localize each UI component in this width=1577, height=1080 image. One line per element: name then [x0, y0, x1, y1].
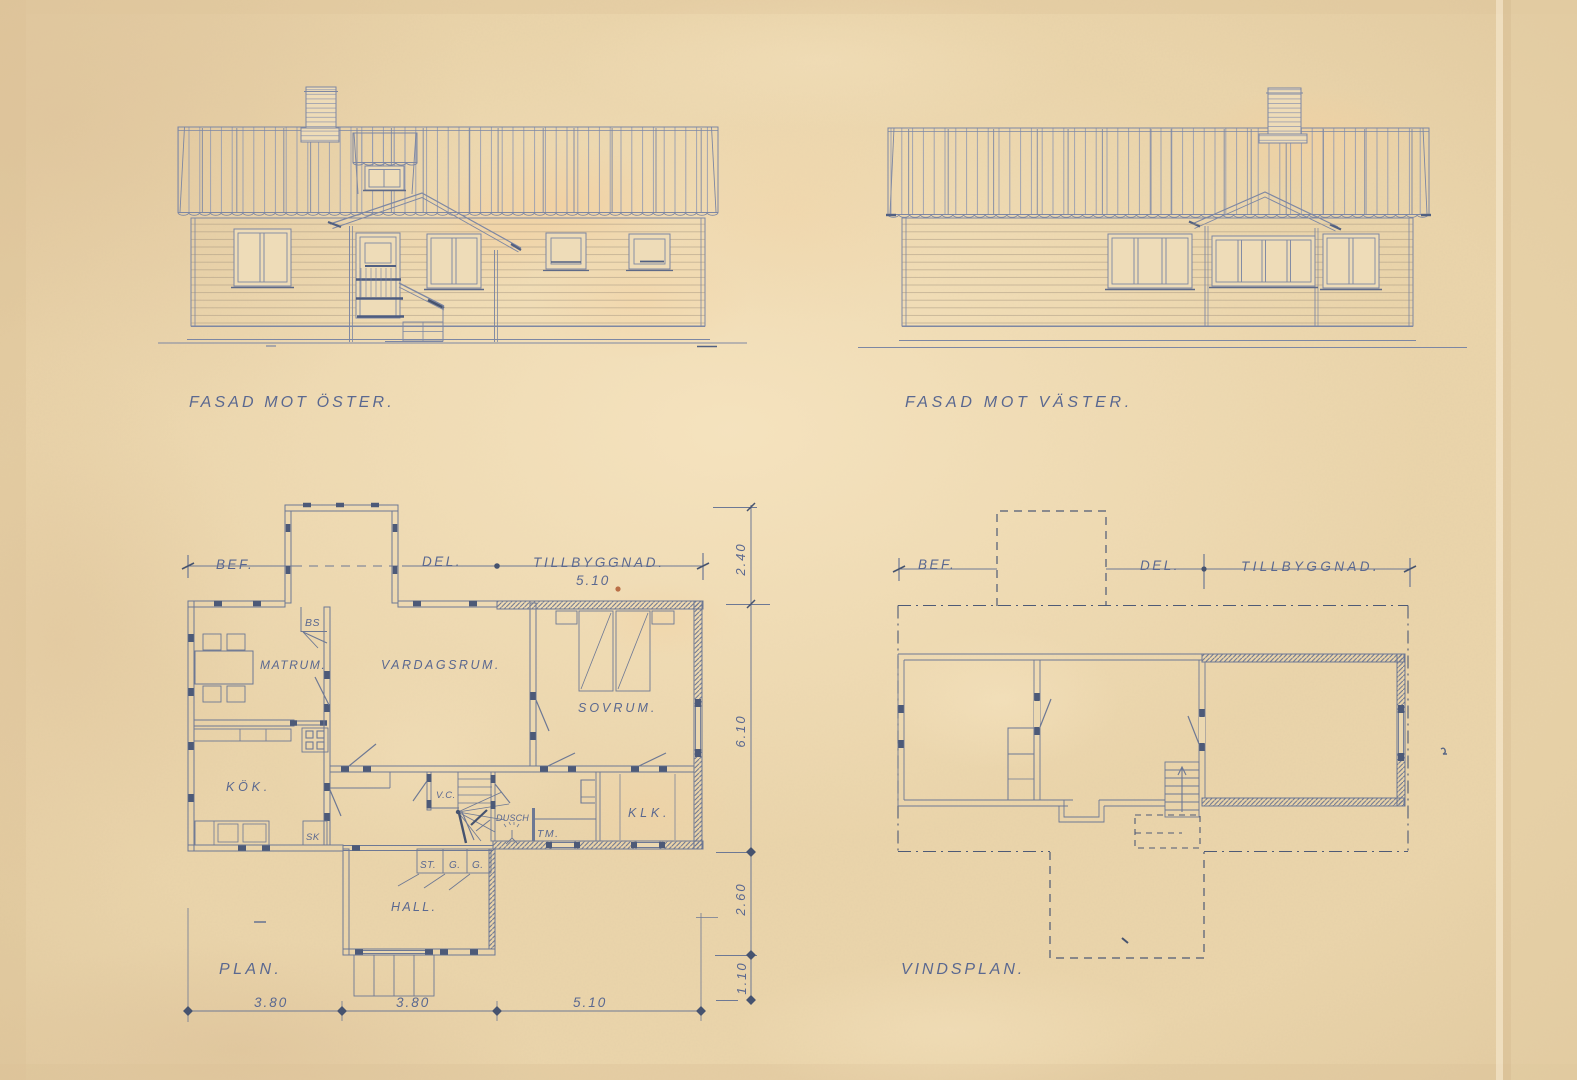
svg-text:1.10: 1.10: [734, 961, 749, 994]
svg-text:KÖK.: KÖK.: [226, 780, 271, 794]
svg-text:V.C.: V.C.: [436, 790, 456, 801]
svg-text:BS: BS: [305, 617, 320, 629]
svg-text:ST.: ST.: [420, 860, 436, 871]
svg-text:3.80: 3.80: [396, 995, 430, 1010]
svg-text:TM.: TM.: [537, 828, 560, 840]
svg-text:FASAD MOT ÖSTER.: FASAD MOT ÖSTER.: [189, 393, 395, 411]
svg-text:KLK.: KLK.: [628, 806, 670, 820]
svg-text:5.10: 5.10: [576, 573, 610, 588]
svg-text:2.60: 2.60: [733, 882, 748, 916]
svg-text:G.: G.: [449, 860, 461, 871]
svg-text:DEL.: DEL.: [1140, 558, 1180, 573]
svg-text:DUSCH: DUSCH: [496, 813, 529, 823]
svg-text:TILLBYGGNAD.: TILLBYGGNAD.: [1241, 559, 1380, 574]
svg-text:5.10: 5.10: [573, 995, 607, 1010]
svg-text:VINDSPLAN.: VINDSPLAN.: [901, 961, 1025, 978]
svg-text:MATRUM.: MATRUM.: [260, 658, 326, 672]
svg-text:TILLBYGGNAD.: TILLBYGGNAD.: [533, 555, 665, 570]
svg-text:SK: SK: [306, 832, 320, 843]
svg-text:G.: G.: [472, 860, 484, 871]
svg-text:3.80: 3.80: [254, 995, 288, 1010]
svg-text:SOVRUM.: SOVRUM.: [578, 701, 657, 715]
svg-text:HALL.: HALL.: [391, 900, 437, 914]
svg-text:6.10: 6.10: [733, 714, 748, 747]
svg-text:FASAD MOT VÄSTER.: FASAD MOT VÄSTER.: [905, 393, 1133, 411]
svg-text:BEF.: BEF.: [918, 557, 956, 572]
svg-text:VARDAGSRUM.: VARDAGSRUM.: [381, 658, 501, 672]
svg-text:PLAN.: PLAN.: [219, 961, 282, 978]
svg-text:2.40: 2.40: [733, 542, 748, 576]
svg-text:BEF.: BEF.: [216, 557, 254, 572]
svg-text:DEL.: DEL.: [422, 554, 462, 569]
